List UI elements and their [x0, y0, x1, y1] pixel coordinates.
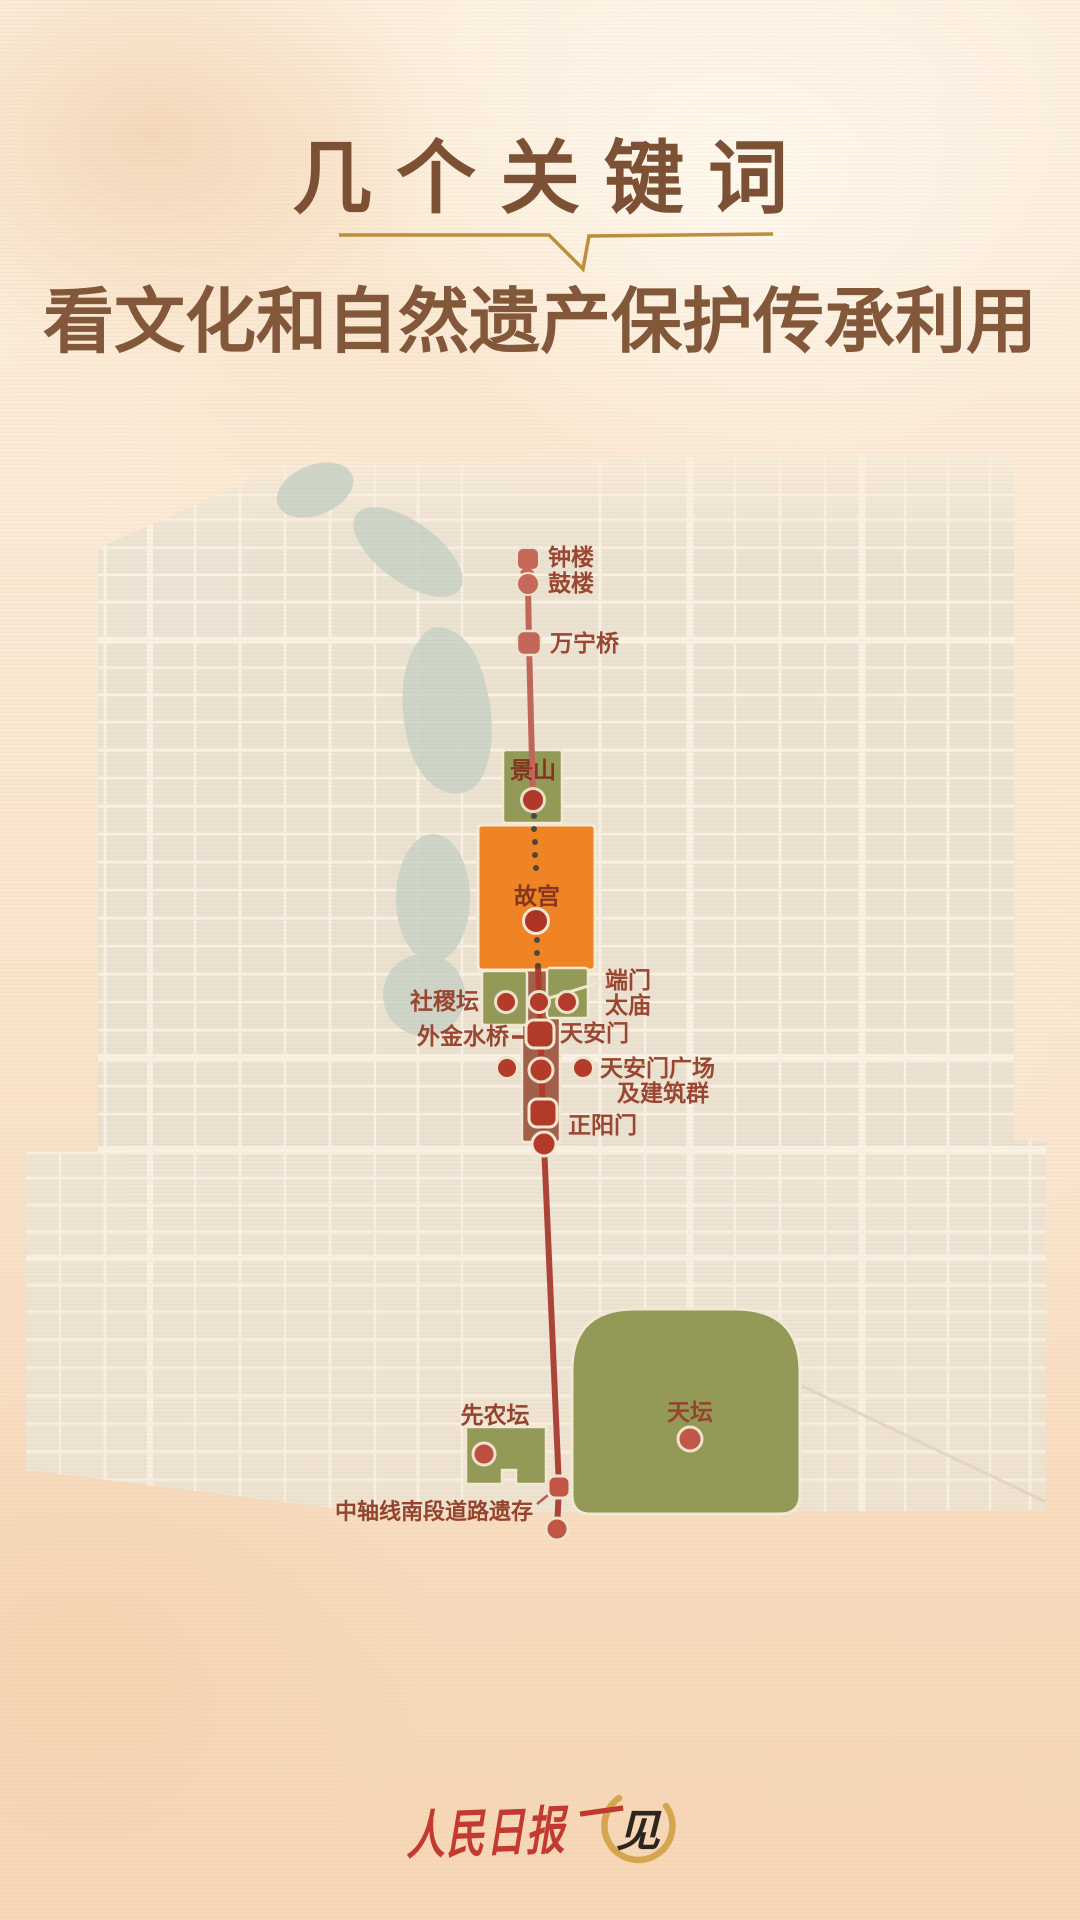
dot-square-east	[573, 1058, 594, 1079]
dot-gugong	[524, 909, 549, 934]
label-jingshan: 景山	[510, 758, 556, 784]
label-axis-south-road-remains: 中轴线南段道路遗存	[335, 1500, 533, 1526]
dot-square-center	[529, 1058, 553, 1082]
dot-jingshan	[522, 789, 545, 812]
label-tiananmen: 天安门	[560, 1021, 629, 1047]
lake-zhongnanhai	[396, 834, 470, 962]
dot-gulou	[517, 573, 539, 595]
dot-tiananmen	[526, 1020, 554, 1048]
label-tiantan: 天坛	[667, 1400, 713, 1426]
peoples-daily-logo: 人民日报	[405, 1788, 566, 1869]
dot-tiantan	[678, 1427, 702, 1451]
label-shejitan: 社稷坛	[410, 989, 479, 1015]
beijing-central-axis-map	[0, 0, 1080, 1920]
label-gugong: 故宫	[514, 884, 560, 910]
dot-duanmen	[529, 992, 550, 1013]
logo-char-jian: 见	[616, 1806, 662, 1857]
dot-wanningqiao	[517, 631, 541, 655]
dot-zhengyangmen-south	[532, 1132, 556, 1156]
dot-road-remains	[548, 1476, 570, 1498]
label-tiananmen-square-line1: 天安门广场	[600, 1056, 715, 1082]
label-xiannongtan: 先农坛	[461, 1403, 530, 1429]
yijian-column-logo: 一 见	[572, 1784, 682, 1874]
dot-shejitan	[496, 992, 517, 1013]
dot-xiannongtan	[473, 1443, 495, 1465]
dot-square-west	[497, 1058, 518, 1079]
label-wanningqiao: 万宁桥	[550, 631, 619, 657]
dot-zhengyangmen	[529, 1099, 557, 1127]
label-gulou: 鼓楼	[548, 571, 594, 597]
label-zhonglou: 钟楼	[548, 545, 594, 571]
label-waijinshuiqiao: 外金水桥	[417, 1024, 509, 1050]
poster: 几个关键词 看文化和自然遗产保护传承利用	[0, 0, 1080, 1920]
dot-taimiao	[557, 992, 578, 1013]
label-duanmen: 端门	[605, 968, 651, 994]
label-tiananmen-square-line2: 及建筑群	[617, 1081, 709, 1107]
label-taimiao: 太庙	[605, 993, 651, 1019]
dot-axis-south-end	[546, 1518, 568, 1540]
label-zhengyangmen: 正阳门	[568, 1113, 637, 1139]
